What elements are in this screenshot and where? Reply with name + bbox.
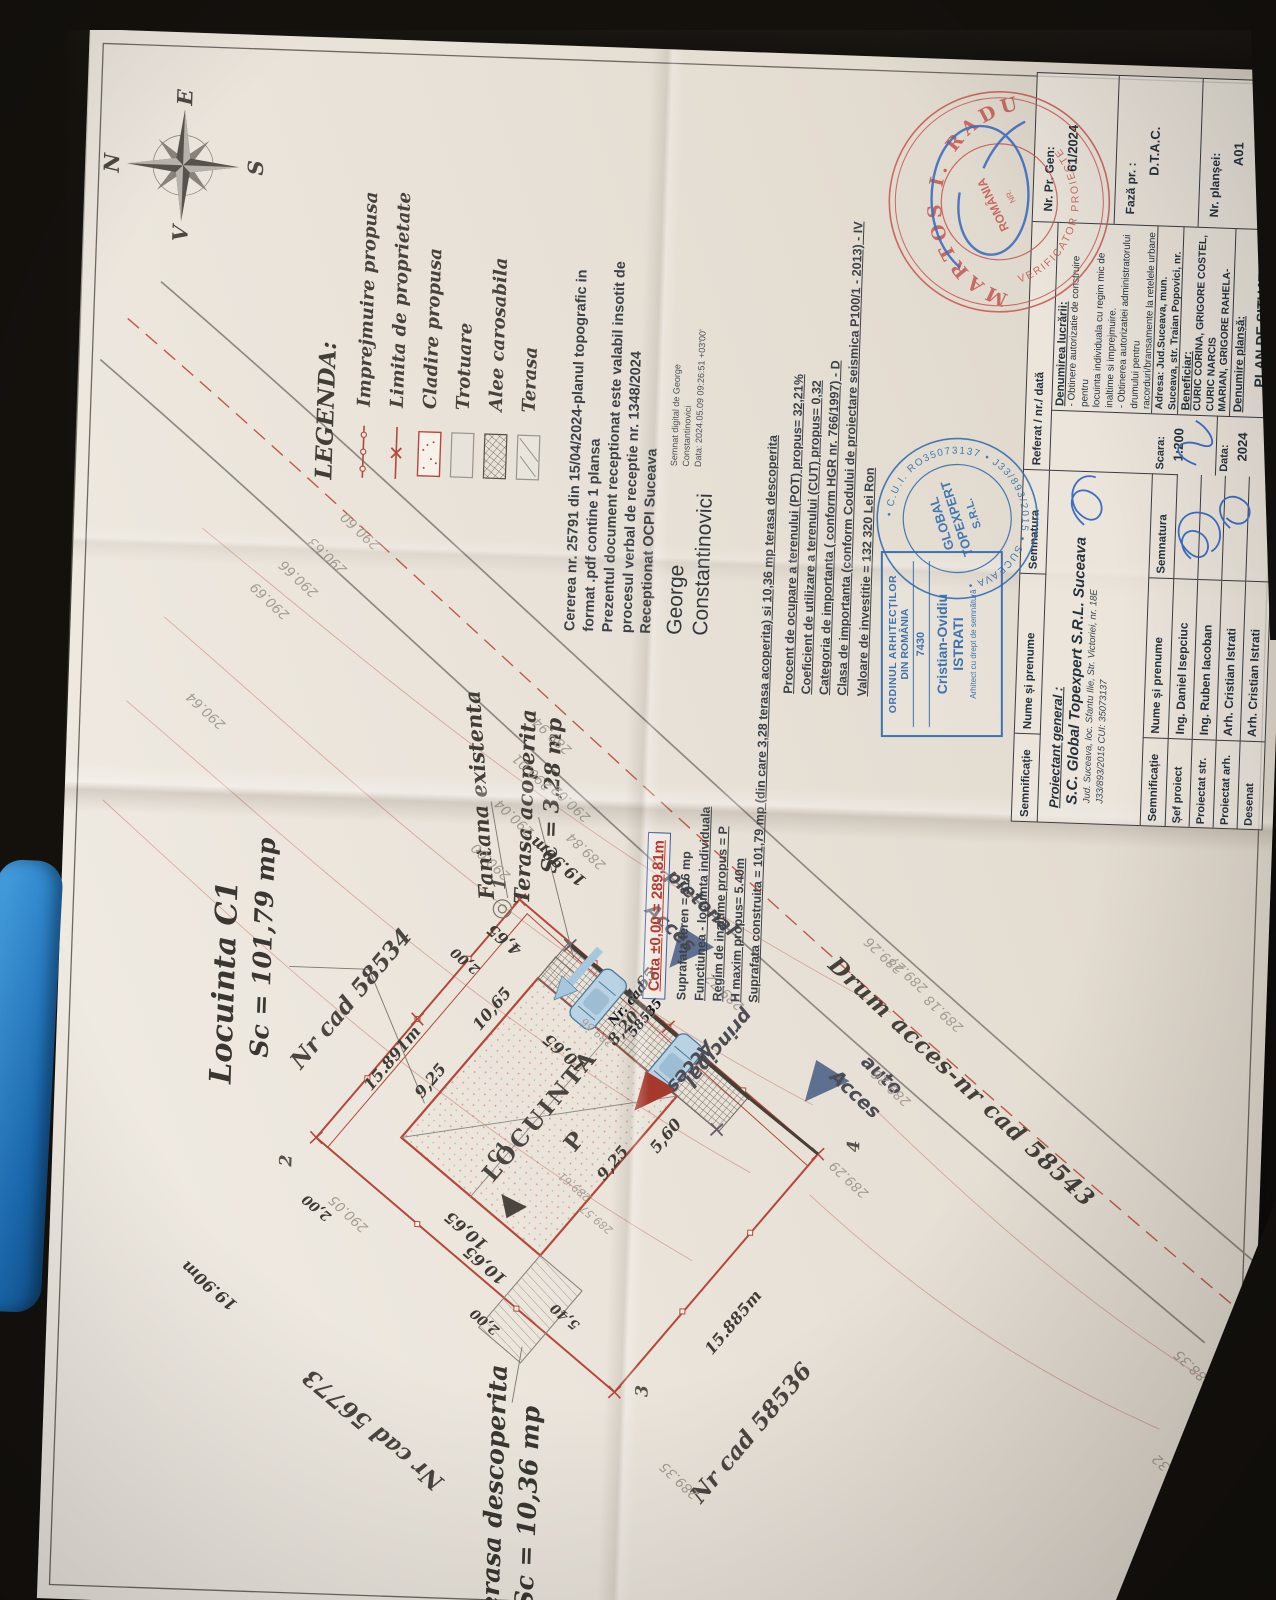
beneficiary-cell: Beneficiar: CURIC CORINA, GRIGORE COSTEL… <box>1178 226 1237 416</box>
svg-text:NR.: NR. <box>1003 188 1017 204</box>
plan-label: 2,00 <box>299 1191 334 1224</box>
legend-label: Trotuare <box>453 322 477 410</box>
plan-label: Nr cad 56773 <box>298 1363 449 1496</box>
header-semnificatie: Semnificație <box>1012 733 1041 822</box>
phase-cell: Fază pr. :D.T.A.C. <box>1115 76 1204 227</box>
legend-label: Limita de proprietate <box>387 192 416 409</box>
legend-label: Imprejmuire propusa <box>354 191 382 407</box>
verificator-stamp: MARTOS I. RADU VERIFICATOR PROIECTE ROMÂ… <box>878 81 1120 323</box>
plan-label: 289.18 <box>921 991 966 1035</box>
legend-label: Cladire propusa <box>420 248 447 410</box>
plan-label: 289.57 <box>578 1202 616 1237</box>
cota-value: Cota ±0,00 = 289,81m <box>642 832 671 1000</box>
plan-label: 5,40 <box>547 1300 582 1333</box>
legend-label: Alee carosabila <box>486 257 512 411</box>
header2-semnificatie: Semnificație <box>1140 737 1169 826</box>
plan-label: 289.29 <box>826 1157 871 1201</box>
proiectant-cell: Proiectant general : S.C. Global Topexpe… <box>1038 470 1152 825</box>
plan-label: P <box>558 1124 592 1157</box>
plan-label: Terasa descoperita <box>475 1364 513 1600</box>
plan-label: 9,25 <box>411 1059 451 1101</box>
scale-cell: Scara:1:200 <box>1152 413 1218 475</box>
plan-label: 289.61 <box>556 1169 594 1204</box>
background-edge <box>0 0 1276 30</box>
plan-label: 2,00 <box>448 944 483 977</box>
plan-label: 2,00 <box>467 1305 502 1338</box>
plan-label: Sc = 101,79 mp <box>245 837 282 1058</box>
legend-label: Terasa <box>519 346 542 412</box>
plan-label: 290.64 <box>183 688 228 732</box>
plan-label: 5,60 <box>646 1115 686 1157</box>
header2-semnatura: Semnatura <box>1148 473 1178 578</box>
legend: LEGENDA: Imprejmuire propusa <box>310 179 553 487</box>
legend-symbol <box>348 422 378 481</box>
topexpert-stamp: • C.U.I. RO35073137 • J33/893/2015 • SUC… <box>868 430 1046 608</box>
plan-label: 290.69 <box>247 579 292 623</box>
site-data-block: Cota ±0,00 = 289,81m Suprafata teren = 3… <box>642 399 783 1003</box>
legend-symbol <box>381 423 411 482</box>
plan-label: 290.66 <box>276 557 321 601</box>
legend-symbol <box>447 426 477 485</box>
plan-label: Locuinta C1 <box>204 880 246 1084</box>
legend-symbol <box>480 427 510 486</box>
plan-label: 4,65 <box>483 920 525 960</box>
plan-label: Drum acces-nr cad 58543 <box>823 951 1100 1212</box>
plan-label: 9,25 <box>593 1142 633 1184</box>
plan-label: 2 <box>276 1154 296 1167</box>
plan-label: 290.60 <box>338 509 383 553</box>
plan-label: Sc = 10,36 mp <box>509 1405 545 1600</box>
plan-label: 4 <box>844 1140 864 1153</box>
legend-symbol <box>414 425 444 484</box>
plan-label: 10,65 <box>468 983 515 1034</box>
plan-label: 3 <box>632 1385 652 1398</box>
legend-symbol <box>513 428 543 487</box>
svg-text:ROMÂNIA: ROMÂNIA <box>973 176 1012 234</box>
photo-background: N E S V Locuinta C1Sc = 101,79 mpNr cad … <box>0 0 1276 1600</box>
plan-label: 10,65 <box>460 1242 511 1289</box>
plan-label: 19.90m <box>177 1257 241 1315</box>
plan-label: LOCUINTA <box>477 1044 603 1187</box>
plan-sheet: N E S V Locuinta C1Sc = 101,79 mpNr cad … <box>35 29 1276 1600</box>
plan-label: Nr cad 58536 <box>685 1358 818 1509</box>
plan-label: 290.63 <box>305 534 350 578</box>
plan-label: 15.885m <box>701 1286 766 1358</box>
